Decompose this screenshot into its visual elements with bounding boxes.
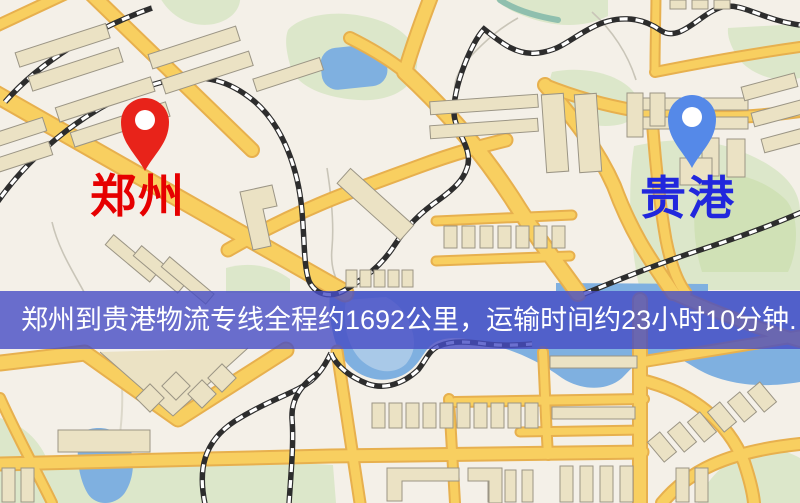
map-base-image xyxy=(0,0,800,503)
destination-city-label: 贵港 xyxy=(640,174,736,225)
origin-pin-icon[interactable] xyxy=(117,95,173,172)
map-canvas: 郑州 贵港 郑州到贵港物流专线全程约1692公里，运输时间约23小时10分钟. xyxy=(0,0,800,503)
destination-pin-icon[interactable] xyxy=(664,92,720,169)
origin-city-label: 郑州 xyxy=(90,172,186,223)
route-info-banner: 郑州到贵港物流专线全程约1692公里，运输时间约23小时10分钟. xyxy=(0,291,800,349)
route-info-text: 郑州到贵港物流专线全程约1692公里，运输时间约23小时10分钟. xyxy=(21,305,797,335)
